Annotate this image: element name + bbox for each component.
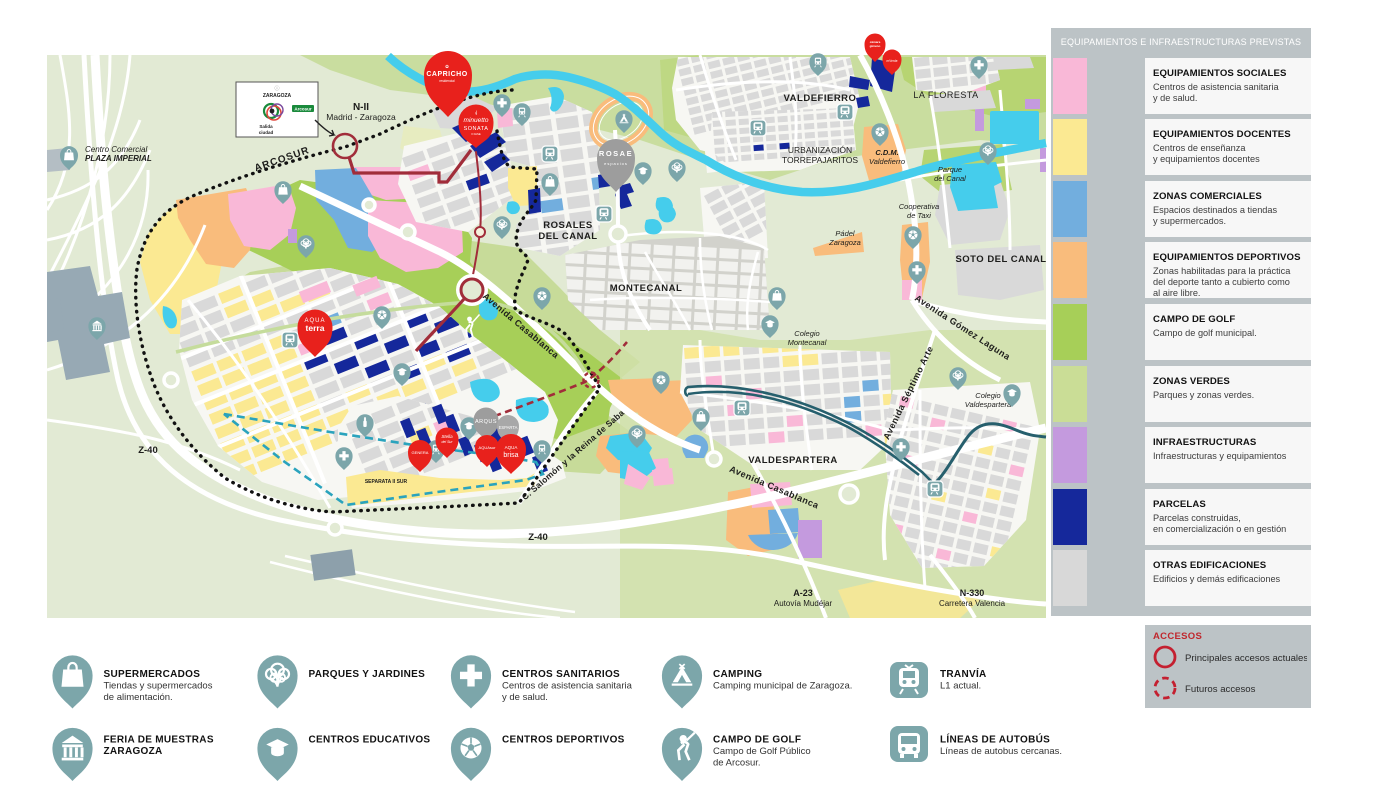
svg-text:espacios: espacios — [604, 161, 628, 166]
svg-text:residencial: residencial — [439, 79, 455, 83]
svg-text:URBANIZACIÓN: URBANIZACIÓN — [788, 145, 852, 155]
svg-text:Colegio: Colegio — [975, 391, 1000, 400]
svg-text:VALDESPARTERA: VALDESPARTERA — [748, 455, 838, 466]
svg-text:ARQUS: ARQUS — [475, 419, 497, 425]
svg-text:Madrid - Zaragoza: Madrid - Zaragoza — [326, 112, 396, 122]
svg-text:ROSAE: ROSAE — [599, 149, 633, 158]
svg-text:ciudad: ciudad — [259, 130, 274, 135]
svg-text:Salida: Salida — [259, 124, 273, 129]
svg-text:de Taxi: de Taxi — [907, 211, 931, 220]
svg-text:brisa: brisa — [503, 452, 518, 459]
svg-text:✿: ✿ — [445, 64, 449, 69]
svg-text:AQUAsur: AQUAsur — [479, 445, 497, 450]
svg-text:ESPARTA: ESPARTA — [499, 425, 518, 430]
svg-text:DEL CANAL: DEL CANAL — [538, 231, 597, 242]
svg-text:II FASE: II FASE — [471, 132, 481, 136]
svg-text:Zaragoza: Zaragoza — [828, 238, 861, 247]
svg-text:PLAZA IMPERIAL: PLAZA IMPERIAL — [85, 154, 152, 163]
svg-text:MONTECANAL: MONTECANAL — [610, 283, 683, 294]
svg-text:Parque: Parque — [938, 165, 962, 174]
svg-text:Arcosur: Arcosur — [294, 107, 312, 112]
svg-text:Cooperativa: Cooperativa — [899, 202, 939, 211]
svg-text:N-330: N-330 — [960, 588, 985, 598]
svg-text:SOTO DEL CANAL: SOTO DEL CANAL — [955, 254, 1046, 265]
svg-text:minuetto: minuetto — [464, 117, 489, 124]
svg-text:C.D.M.: C.D.M. — [875, 148, 898, 157]
svg-text:Autovía Mudéjar: Autovía Mudéjar — [774, 599, 833, 608]
svg-text:ROSALES: ROSALES — [543, 220, 592, 231]
svg-text:ZARAGOZA: ZARAGOZA — [263, 93, 292, 99]
svg-text:Z-40: Z-40 — [528, 532, 548, 543]
svg-text:Futuros accesos: Futuros accesos — [1185, 684, 1256, 695]
svg-text:Valdefierro: Valdefierro — [869, 157, 905, 166]
svg-text:mVerde: mVerde — [887, 59, 898, 63]
svg-text:VALDEFIERRO: VALDEFIERRO — [784, 93, 857, 104]
svg-text:gimeno: gimeno — [870, 44, 881, 48]
svg-text:Colegio: Colegio — [794, 329, 819, 338]
svg-text:CAPRICHO: CAPRICHO — [426, 71, 467, 78]
svg-text:SEPARATA II SUR: SEPARATA II SUR — [365, 479, 408, 485]
svg-text:AQUA: AQUA — [505, 445, 518, 450]
svg-text:Stella: Stella — [441, 434, 453, 439]
svg-text:GENERA: GENERA — [412, 450, 429, 455]
svg-text:LA FLORESTA: LA FLORESTA — [913, 90, 978, 100]
svg-text:del Canal: del Canal — [934, 174, 966, 183]
svg-text:TORREPAJARITOS: TORREPAJARITOS — [782, 155, 858, 165]
svg-text:Carretera Valencia: Carretera Valencia — [939, 599, 1006, 608]
svg-text:ⓘ: ⓘ — [274, 85, 279, 92]
svg-text:Centro Comercial: Centro Comercial — [85, 145, 147, 154]
svg-text:Pádel: Pádel — [835, 229, 855, 238]
svg-text:Valdespartera: Valdespartera — [965, 400, 1011, 409]
svg-text:A-23: A-23 — [793, 588, 813, 598]
svg-text:Montecanal: Montecanal — [788, 338, 827, 347]
svg-text:Principales accesos actuales: Principales accesos actuales — [1185, 653, 1307, 664]
svg-text:terra: terra — [306, 323, 325, 333]
svg-text:del Sur: del Sur — [441, 440, 453, 444]
svg-text:Z-40: Z-40 — [138, 445, 158, 456]
